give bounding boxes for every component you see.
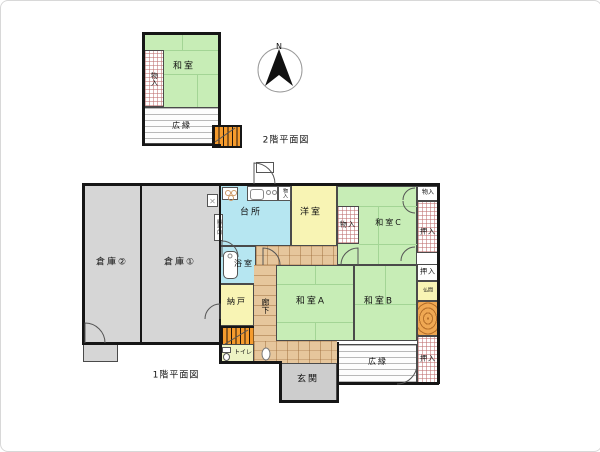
- room-label-warehouse-2: 倉庫②: [96, 259, 128, 268]
- room-label-warehouse-1: 倉庫①: [164, 259, 196, 268]
- kitchen-sink-icon: [247, 186, 278, 201]
- wall: [219, 183, 221, 343]
- room-label-genkan: 玄関: [297, 376, 319, 385]
- wall: [142, 32, 145, 146]
- room-label-butsuma: 仏間: [423, 289, 433, 294]
- wall: [142, 144, 221, 147]
- tatami-line: [359, 206, 417, 207]
- wall: [279, 400, 339, 403]
- tatami-line: [315, 266, 316, 284]
- closet-label-monoire-c: 物入: [340, 222, 356, 229]
- compass-north-label: N: [276, 42, 282, 51]
- tatami-line: [277, 284, 353, 285]
- wall: [82, 183, 85, 344]
- tatami-line: [378, 206, 379, 264]
- hall-flooring: [254, 341, 337, 363]
- wall: [140, 185, 142, 342]
- tatami-line: [315, 322, 316, 340]
- wall: [218, 32, 221, 125]
- room-label-toilet: トイレ: [234, 350, 252, 356]
- tatami-line: [359, 244, 417, 245]
- wall: [437, 183, 440, 384]
- closet-label-oshiire-se: 押入: [420, 356, 436, 363]
- toilet-bowl-icon: [223, 353, 230, 361]
- floor1-title-label: 1階平面図: [153, 372, 200, 381]
- floorplan-page: 和室 物入 広縁 2階平面図: [0, 0, 600, 452]
- room-label-hiroen-1f: 広縁: [368, 358, 388, 366]
- wall: [219, 361, 282, 364]
- washing-machine-icon: ✕: [207, 194, 218, 207]
- wall: [82, 342, 222, 345]
- room-label-2f-hiroen: 広縁: [172, 122, 192, 130]
- wall: [279, 361, 282, 402]
- tokonoma-alcove: [417, 301, 439, 336]
- floor2-title-label: 2階平面図: [263, 137, 310, 146]
- tatami-line: [197, 74, 198, 107]
- wall: [219, 342, 222, 363]
- wall: [82, 183, 439, 186]
- room-label-2f-washitsu: 和室: [173, 63, 195, 72]
- wall: [337, 382, 439, 385]
- warehouse-entry-step: [83, 344, 118, 362]
- room-label-2f-monoire: 物入: [151, 72, 158, 86]
- room-label-bathroom: 浴室: [234, 260, 254, 268]
- wall: [142, 32, 221, 35]
- tatami-line: [182, 35, 183, 50]
- closet-label-oshiire-e1: 押入: [420, 229, 436, 236]
- room-label-washitsu-a: 和室A: [296, 298, 326, 307]
- room-label-washitsu-c: 和室C: [375, 219, 403, 227]
- room-label-washitsu-b: 和室B: [364, 298, 394, 307]
- closet-label-monoire-kitchen: 物入: [282, 188, 287, 198]
- closet-label-monoire-ne: 物入: [422, 190, 434, 196]
- room-label-nando: 納戸: [227, 298, 247, 306]
- wall: [337, 342, 340, 402]
- closet-label-oshiire-e2: 押入: [420, 269, 436, 276]
- tatami-line: [164, 74, 219, 75]
- stove-icon: [222, 187, 238, 200]
- north-compass-icon: N: [258, 42, 302, 92]
- room-label-back-door: 勝手口: [216, 220, 221, 235]
- back-entrance-step: [256, 162, 274, 173]
- room-label-yoshitsu: 洋室: [300, 209, 322, 218]
- room-label-kitchen: 台所: [240, 209, 262, 218]
- corridor-label-rouka: 廊下: [261, 298, 269, 314]
